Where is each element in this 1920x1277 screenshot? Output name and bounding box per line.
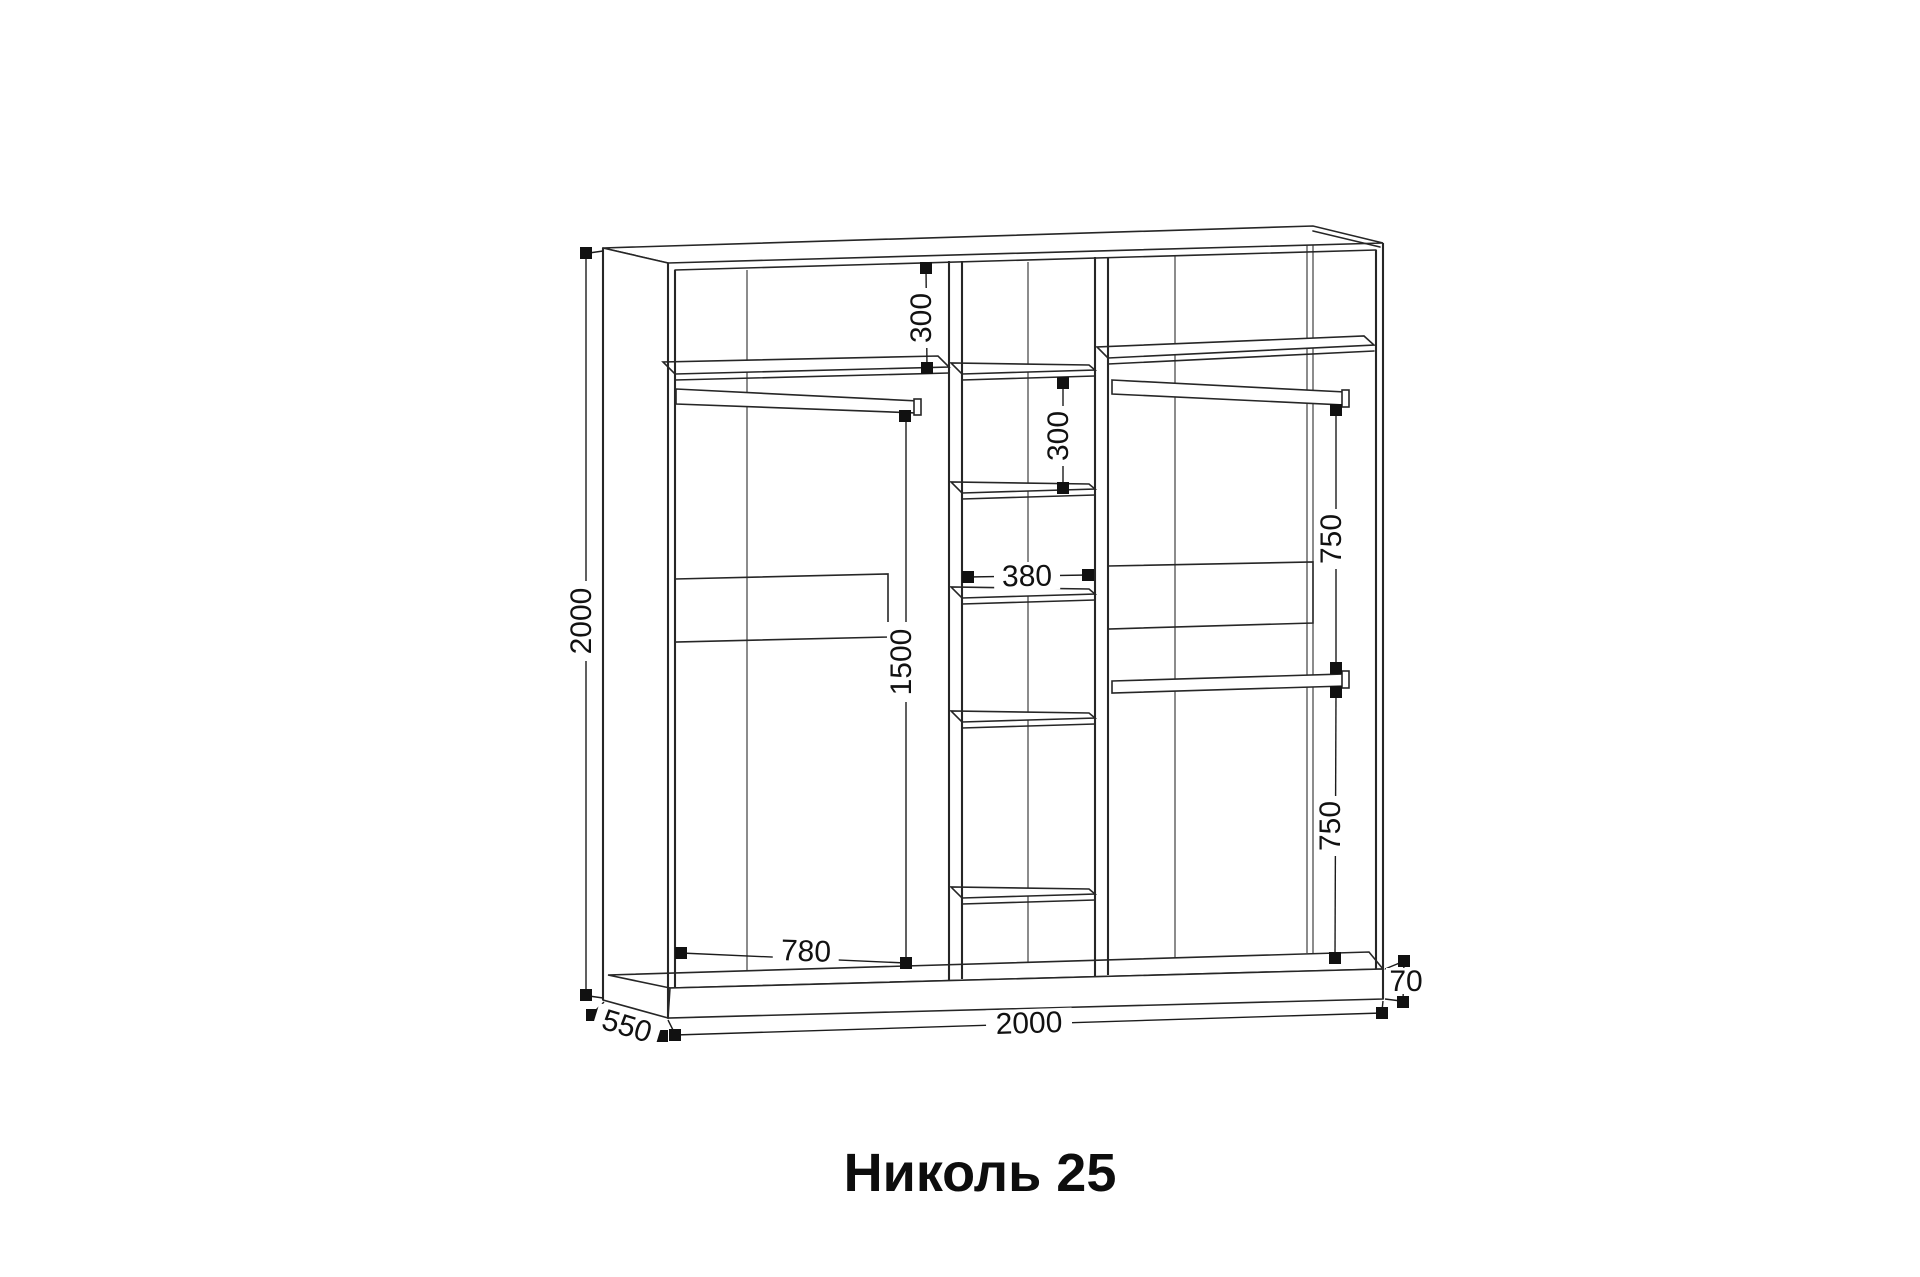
right-back-stiffener: [1108, 562, 1313, 629]
dim-label-right-upper-hanging: 750: [1315, 514, 1348, 564]
dim-label-top-shelf-drop: 300: [905, 293, 938, 343]
dim-label-overall-height: 2000: [565, 588, 598, 655]
middle-shelf-4: [951, 711, 1095, 728]
wardrobe-technical-drawing: 2000 300 1500: [0, 0, 1920, 1277]
left-top-shelf: [663, 356, 949, 380]
middle-shelf-2: [951, 482, 1095, 499]
cabinet-front-edges: [603, 243, 1383, 1018]
technical-drawing-page: 2000 300 1500: [0, 0, 1920, 1277]
dim-left-hanging-height: 1500: [885, 410, 918, 963]
dim-left-section-width: 780: [675, 934, 912, 969]
dim-label-plinth-height: 70: [1389, 965, 1422, 998]
middle-shelf-5: [951, 887, 1095, 904]
middle-shelf-1: [951, 363, 1095, 380]
dim-middle-shelf-gap: 300: [1042, 377, 1075, 494]
dim-overall-height: 2000: [565, 247, 598, 1001]
partition-right: [1095, 257, 1108, 976]
dim-label-middle-shelf-gap: 300: [1042, 411, 1075, 461]
left-side-panel: [603, 248, 668, 1018]
dim-label-left-section-width: 780: [780, 934, 831, 969]
left-hanging-rod: [676, 389, 921, 415]
dim-label-overall-width: 2000: [995, 1006, 1063, 1041]
dim-label-left-hanging-height: 1500: [885, 629, 918, 696]
right-top-shelf: [1097, 336, 1374, 364]
dim-right-lower-hanging: 750: [1314, 686, 1347, 964]
dim-label-right-lower-hanging: 750: [1314, 801, 1347, 851]
dim-label-middle-column-width: 380: [1002, 560, 1053, 594]
drawing-title: Николь 25: [844, 1143, 1117, 1203]
top-panel: [603, 226, 1383, 266]
left-back-stiffener: [675, 574, 888, 642]
dim-right-upper-hanging: 750: [1315, 404, 1348, 674]
